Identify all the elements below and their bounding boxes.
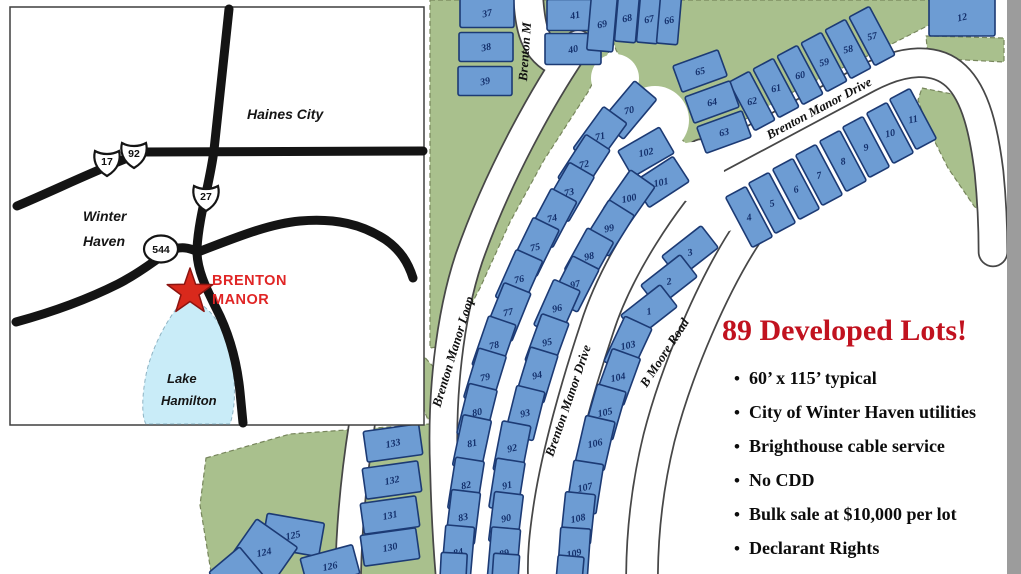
bullet-dot: • xyxy=(734,437,740,457)
label-brenton: BRENTON xyxy=(212,273,287,289)
features-list: •60’ x 115’ typical•City of Winter Haven… xyxy=(734,368,1021,559)
lot-66: 66 xyxy=(656,0,681,45)
shield-92-label: 92 xyxy=(128,148,140,160)
feature-text: Brighthouse cable service xyxy=(749,436,945,457)
shield-17-label: 17 xyxy=(101,156,113,168)
feature-text: Bulk sale at $10,000 per lot xyxy=(749,504,957,525)
feature-item: •60’ x 115’ typical xyxy=(734,368,1021,389)
feature-item: •Declarant Rights xyxy=(734,538,1021,559)
bullet-dot: • xyxy=(734,539,740,559)
lot-38: 38 xyxy=(459,33,513,62)
label-lake: Lake xyxy=(167,371,197,386)
shield-27-label: 27 xyxy=(200,191,212,203)
feature-text: 60’ x 115’ typical xyxy=(749,368,877,389)
label-winter: Winter xyxy=(83,208,128,224)
lot-68: 68 xyxy=(614,0,639,43)
route-shield-544: 544 xyxy=(144,236,178,263)
headline: 89 Developed Lots! xyxy=(722,314,1021,348)
lot-number: 40 xyxy=(566,44,579,57)
marketing-panel: 89 Developed Lots! •60’ x 115’ typical•C… xyxy=(722,314,1021,572)
label-manor: MANOR xyxy=(212,292,269,308)
lot-39: 39 xyxy=(458,67,512,96)
feature-text: City of Winter Haven utilities xyxy=(749,402,976,423)
lot-12: 12 xyxy=(929,0,995,36)
lot-partial xyxy=(554,555,584,574)
shield-544-label: 544 xyxy=(152,244,170,256)
bullet-dot: • xyxy=(734,471,740,491)
feature-text: Declarant Rights xyxy=(749,538,879,559)
lot-number: 41 xyxy=(568,10,581,23)
lot-number: 39 xyxy=(478,76,491,89)
feature-text: No CDD xyxy=(749,470,815,491)
lot-132: 132 xyxy=(362,461,422,499)
inset-location-map: 17 92 27 544 Haines City Winter Haven La… xyxy=(10,7,424,425)
bullet-dot: • xyxy=(734,403,740,423)
feature-item: •No CDD xyxy=(734,470,1021,491)
lot-130: 130 xyxy=(360,528,420,566)
lot-partial xyxy=(439,552,468,574)
lot-number: 38 xyxy=(479,42,492,55)
bullet-dot: • xyxy=(734,505,740,525)
label-hamilton: Hamilton xyxy=(161,393,217,408)
feature-item: •City of Winter Haven utilities xyxy=(734,402,1021,423)
lot-37: 37 xyxy=(460,0,514,28)
lot-partial xyxy=(490,553,519,574)
bullet-dot: • xyxy=(734,369,740,389)
flyer-canvas: 3738394140696867666261605958571265646345… xyxy=(0,0,1021,574)
label-haven: Haven xyxy=(83,233,125,249)
feature-item: •Bulk sale at $10,000 per lot xyxy=(734,504,1021,525)
label-haines-city: Haines City xyxy=(247,106,324,122)
lot-69: 69 xyxy=(587,0,618,52)
lot-133: 133 xyxy=(363,424,423,462)
feature-item: •Brighthouse cable service xyxy=(734,436,1021,457)
